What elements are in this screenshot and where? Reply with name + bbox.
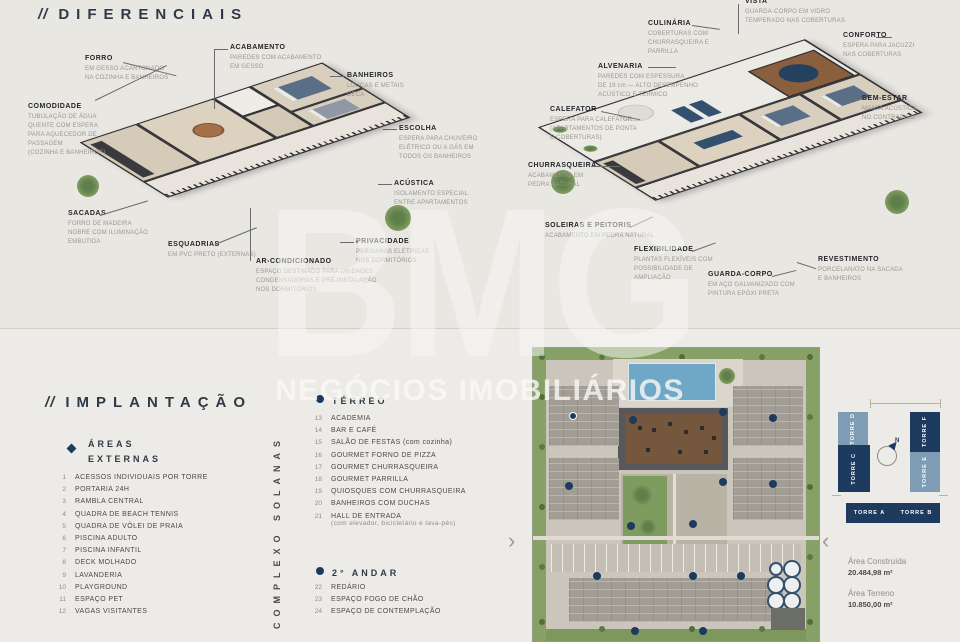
dot-bullet-icon [316, 567, 324, 575]
site-markers [569, 412, 577, 420]
list-item: 20BANHEIROS COM DUCHAS [308, 500, 466, 512]
palm-tree [719, 368, 735, 384]
callout-line [383, 129, 397, 130]
callout-line [648, 67, 676, 68]
area-terreno-label: Área Terreno [848, 589, 894, 598]
callout-line [330, 76, 344, 77]
list-item: 1ACESSOS INDIVIDUAIS POR TORRE [52, 474, 208, 486]
callout-line [340, 242, 354, 243]
service-pad [771, 608, 805, 630]
callout-revestimento: REVESTIMENTO PORCELANATO NA SACADA E BAN… [818, 256, 918, 284]
list-item: 23ESPAÇO FOGO DE CHÃO [308, 596, 441, 608]
plant [385, 205, 411, 231]
callout-line [250, 208, 251, 261]
callout-banheiros: BANHEIROS LOUÇAS E METAIS DECA [347, 72, 427, 100]
list-item: 19QUIOSQUES COM CHURRASQUEIRA [308, 488, 466, 500]
list-item: 9LAVANDERIA [52, 572, 208, 584]
list-item: 22REDÁRIO [308, 584, 441, 596]
diferenciais-title: //DIFERENCIAIS [38, 6, 248, 23]
tower-d: TORRE D [838, 412, 868, 445]
towers-key-diagram: TORRE D TORRE C TORRE F TORRE E N TORRE … [830, 395, 950, 630]
planter [581, 144, 601, 153]
list-item: 21HALL DE ENTRADA(com elevador, biciclet… [308, 513, 466, 527]
tower-roof [569, 578, 783, 622]
callout-sacadas: SACADAS FORRO DE MADEIRA NOBRE COM ILUMI… [68, 210, 153, 247]
road [533, 536, 819, 540]
callout-acustica: ACÚSTICA ISOLAMENTO ESPECIAL ENTRE APART… [394, 180, 484, 208]
palm-tree [631, 484, 653, 506]
dimension-tick [832, 495, 841, 496]
list-item: 3RAMBLA CENTRAL [52, 498, 208, 510]
list-item: 17GOURMET CHURRASQUEIRA [308, 464, 466, 476]
area-construida: Área Construída 20.484,98 m² [848, 557, 906, 577]
bed-1 [273, 76, 332, 101]
list-item: 10PLAYGROUND [52, 584, 208, 596]
tower-roof [549, 458, 619, 520]
complexo-solanas-vertical-label: COMPLEXO SOLANAS [272, 414, 282, 629]
list-item: 7PISCINA INFANTIL [52, 547, 208, 559]
callout-comodidade: COMODIDADE TUBULAÇÃO DE ÁGUA QUENTE COM … [28, 103, 118, 158]
callout-escolha: ESCOLHA ESPERA PARA CHUVEIRO ELÉTRICO OU… [399, 125, 489, 162]
list-item: 11ESPAÇO PET [52, 596, 208, 608]
compass-icon: N [877, 446, 897, 466]
carousel-next-icon[interactable]: › [508, 530, 515, 552]
list-item: 5QUADRA DE VÔLEI DE PRAIA [52, 523, 208, 535]
callout-ar-condicionado: AR-CONDICIONADO ESPAÇO DESTINADO PARA UN… [256, 258, 386, 295]
callout-vista: VISTA GUARDA-CORPO EM VIDRO TEMPERADO NA… [745, 0, 865, 26]
tower-roof [733, 458, 803, 520]
area-terreno: Área Terreno 10.850,00 m² [848, 589, 894, 609]
list-item: 8DECK MOLHADO [52, 559, 208, 571]
dining-table [186, 120, 231, 140]
tower-a: TORRE A [846, 503, 894, 523]
furniture-specks [638, 426, 642, 430]
areas-externas-heading: ÁREAS EXTERNAS [88, 437, 161, 468]
tower-e: TORRE E [910, 452, 940, 492]
callout-bem-estar: BEM-ESTAR MANTA ACÚSTICA NO CONTRAPISO [862, 95, 942, 123]
tower-c: TORRE C [838, 445, 870, 492]
jacuzzi [771, 61, 827, 86]
segundo-andar-heading: 2° ANDAR [332, 566, 399, 581]
diferenciais-section: //DIFERENCIAIS [0, 0, 960, 328]
list-item: 2PORTARIA 24H [52, 486, 208, 498]
segundo-andar-list: 22REDÁRIO 23ESPAÇO FOGO DE CHÃO 24ESPAÇO… [308, 584, 441, 621]
bed-1 [760, 105, 811, 127]
tower-f: TORRE F [910, 412, 940, 452]
area-construida-label: Área Construída [848, 557, 906, 566]
terreo-list: 13ACADEMIA 14BAR E CAFÉ 15SALÃO DE FESTA… [308, 415, 466, 527]
lawn [533, 348, 546, 641]
dimension-line [870, 403, 940, 404]
list-item: 13ACADEMIA [308, 415, 466, 427]
dot-bullet-icon [316, 395, 324, 403]
callout-line [214, 49, 215, 109]
dimension-tick [939, 495, 948, 496]
callout-culinaria: CULINÁRIA COBERTURAS COM CHURRASQUEIRA E… [648, 20, 728, 57]
callout-calefator: CALEFATOR ESPERA PARA CALEFATOR (APARTAM… [550, 106, 645, 143]
list-item: 14BAR E CAFÉ [308, 427, 466, 439]
dimension-tick [870, 399, 871, 408]
area-terreno-value: 10.850,00 m² [848, 600, 894, 609]
list-item: 16GOURMET FORNO DE PIZZA [308, 452, 466, 464]
areas-externas-list: 1ACESSOS INDIVIDUAIS POR TORRE 2PORTARIA… [52, 474, 208, 620]
list-item: 12VAGAS VISITANTES [52, 608, 208, 620]
callout-esquadrias: ESQUADRIAS EM PVC PRETO (EXTERNAS) [168, 241, 278, 260]
callout-line [738, 4, 739, 34]
parking [551, 544, 801, 572]
list-item: 18GOURMET PARRILLA [308, 476, 466, 488]
lawn [533, 629, 819, 641]
tower-roof [549, 386, 619, 446]
callout-line [797, 262, 816, 269]
callout-line [876, 37, 892, 38]
tower-roof [733, 386, 803, 446]
carousel-prev-icon[interactable]: ‹ [822, 530, 829, 552]
dimension-tick [940, 399, 941, 408]
title-slashes: // [45, 394, 55, 411]
callout-line [592, 166, 620, 167]
callout-line [378, 184, 392, 185]
callout-alvenaria: ALVENARIA PAREDES COM ESPESSURA DE 19 cm… [598, 63, 708, 100]
hall-note: (com elevador, bicicletário e lava-pés) [331, 520, 456, 527]
clubhouse-deck [625, 414, 721, 464]
compass-north-label: N [895, 438, 899, 444]
trees [539, 354, 545, 360]
plant [885, 190, 909, 214]
implantacao-title: //IMPLANTAÇÃO [45, 394, 252, 411]
lawn [806, 348, 819, 641]
terreo-heading: TÉRREO [332, 394, 388, 409]
title-slashes: // [38, 6, 48, 23]
callout-acabamento: ACABAMENTO PAREDES COM ACABAMENTO EM GES… [230, 44, 340, 72]
clubhouse-roof [618, 408, 728, 470]
sofa [693, 130, 742, 149]
water-tanks [769, 562, 783, 576]
tower-b: TORRE B [893, 503, 940, 523]
list-item: 4QUADRA DE BEACH TENNIS [52, 511, 208, 523]
diamond-bullet-icon [67, 444, 77, 454]
list-item: 6PISCINA ADULTO [52, 535, 208, 547]
callout-line [214, 49, 228, 50]
list-item: 24ESPAÇO DE CONTEMPLAÇÃO [308, 608, 441, 620]
callout-soleiras: SOLEIRAS E PEITORIS ACABAMENTO EM PEDRA … [545, 222, 675, 241]
callout-forro: FORRO EM GESSO ACARTONADO NA COZINHA E B… [85, 55, 180, 83]
palm-tree [639, 518, 657, 536]
pool [628, 363, 716, 401]
area-construida-value: 20.484,98 m² [848, 568, 906, 577]
plant [77, 175, 99, 197]
callout-guarda-corpo: GUARDA-CORPO EM AÇO GALVANIZADO COM PINT… [708, 271, 808, 299]
site-plan-image [532, 347, 820, 642]
list-item: 15SALÃO DE FESTAS (com cozinha) [308, 439, 466, 451]
